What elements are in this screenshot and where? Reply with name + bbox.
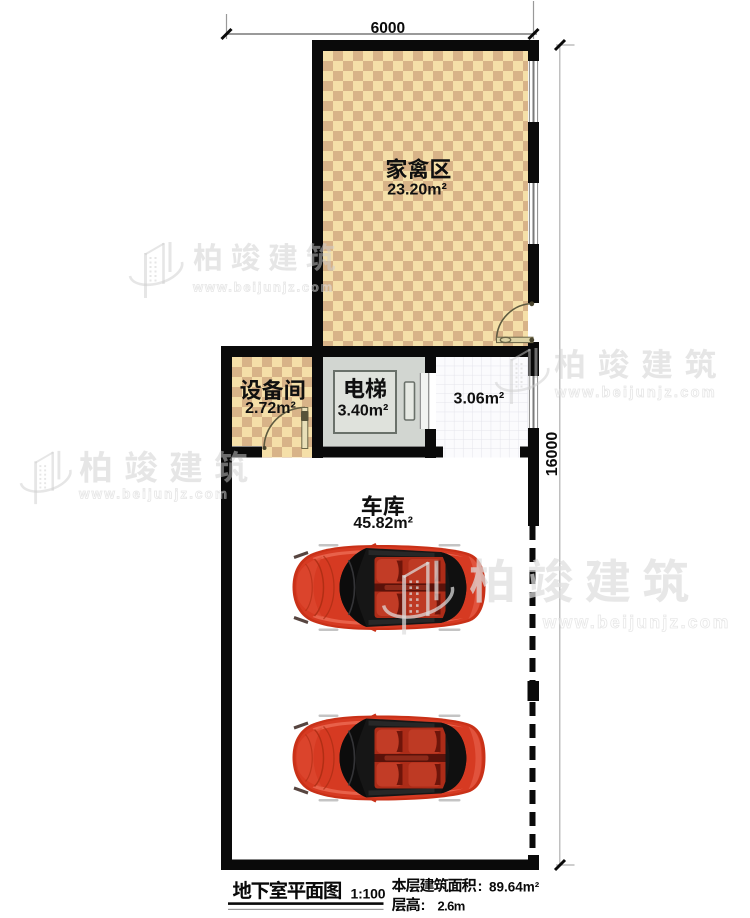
svg-text:16000: 16000 <box>544 432 561 477</box>
svg-text:www.beijunjz.com: www.beijunjz.com <box>78 487 229 502</box>
svg-text::: : <box>421 897 426 914</box>
svg-text:3.40m²: 3.40m² <box>338 403 389 420</box>
svg-text:www.beijunjz.com: www.beijunjz.com <box>542 612 731 632</box>
svg-text:1:100: 1:100 <box>351 886 386 902</box>
svg-text:2.6m: 2.6m <box>438 899 465 914</box>
svg-text:2.72m²: 2.72m² <box>245 400 296 417</box>
svg-text:3.06m²: 3.06m² <box>454 391 505 408</box>
svg-text:www.beijunjz.com: www.beijunjz.com <box>554 385 717 401</box>
svg-text:6000: 6000 <box>371 20 405 37</box>
svg-text:23.20m²: 23.20m² <box>387 182 447 199</box>
svg-text::: : <box>478 878 483 895</box>
svg-text:www.beijunjz.com: www.beijunjz.com <box>192 280 334 295</box>
svg-text:89.64m²: 89.64m² <box>489 880 540 895</box>
svg-text:45.82m²: 45.82m² <box>353 515 413 532</box>
